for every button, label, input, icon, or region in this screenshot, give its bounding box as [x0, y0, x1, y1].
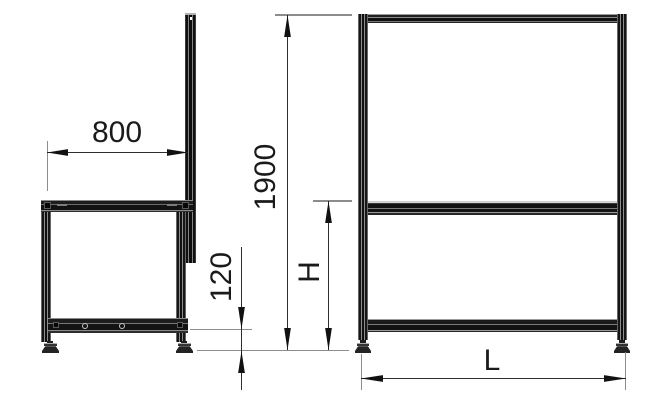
dim-h-arrow-top	[325, 201, 332, 223]
dim-l-line	[361, 378, 626, 379]
dim-120-arrow-upper	[238, 307, 245, 329]
dim-l-label: L	[484, 346, 501, 376]
dim-1900-arrow-top	[284, 15, 291, 37]
dim-120-label: 120	[207, 252, 237, 302]
dim-l-extension-right	[625, 352, 626, 390]
dim-800-arrow-right	[167, 149, 188, 156]
dim-800-line	[47, 152, 188, 153]
dim-800-arrow-left	[47, 149, 68, 156]
dim-1900-arrow-bottom	[284, 328, 291, 350]
dim-h-line	[328, 201, 329, 350]
dim-h-extension-top	[313, 200, 352, 202]
dim-h-arrow-bottom	[325, 328, 332, 350]
dim-800-extension-line	[47, 141, 48, 191]
dim-120-extension-top	[190, 329, 252, 330]
dim-l-arrow-right	[604, 375, 626, 382]
dim-1900-label: 1900	[251, 144, 281, 211]
floor-extension-line	[197, 350, 349, 351]
dimension-annotations: 800 1900 H 120 L	[0, 0, 650, 406]
dim-120-arrow-lower	[238, 351, 245, 373]
technical-drawing-canvas: 800 1900 H 120 L	[0, 0, 650, 406]
dim-1900-line	[287, 15, 288, 350]
dim-800-label: 800	[92, 118, 142, 148]
dim-h-label: H	[295, 261, 325, 283]
dim-l-extension-left	[361, 354, 362, 390]
dim-l-arrow-left	[361, 375, 383, 382]
